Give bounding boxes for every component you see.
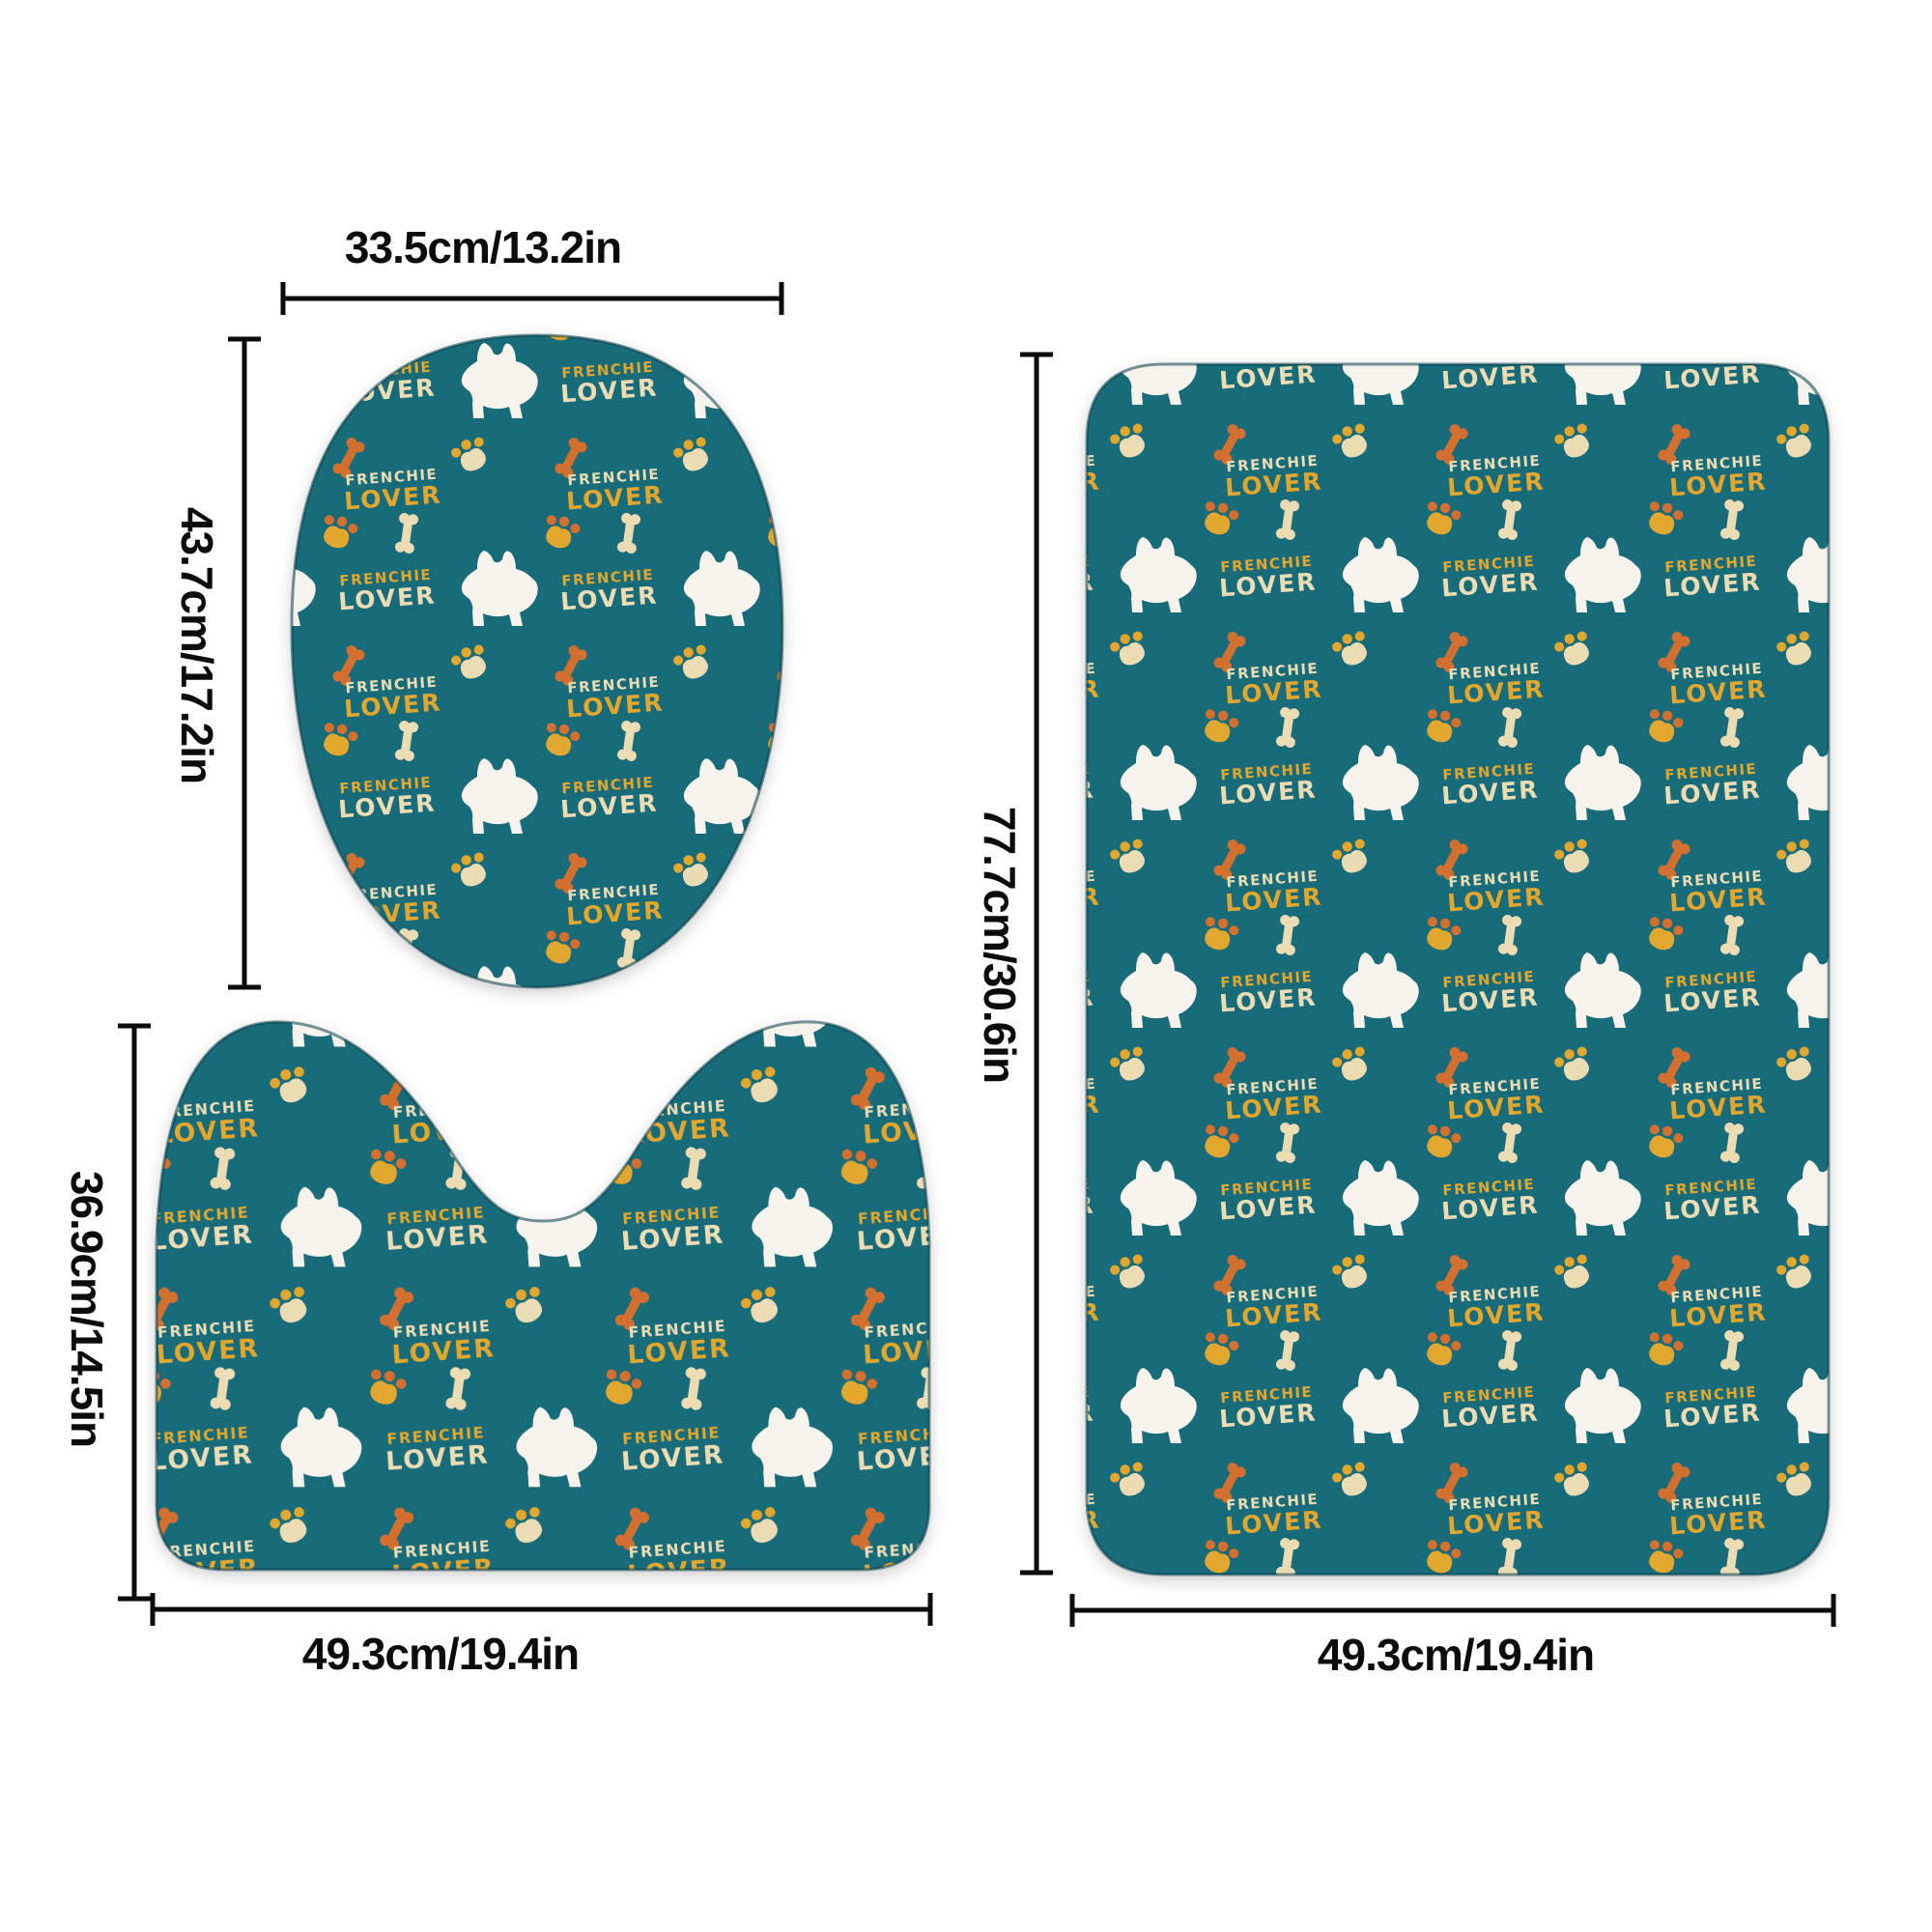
dim-mat-width xyxy=(1072,1594,1833,1627)
lid-height-label: 43.7cm/17.2in xyxy=(171,507,223,783)
dim-lid-width xyxy=(283,282,781,315)
toilet-lid-cover-shape xyxy=(292,335,782,987)
lid-width-label: 33.5cm/13.2in xyxy=(345,221,621,273)
mat-set-graphic: FRENCHIE LOVER xyxy=(0,0,1932,1932)
dim-contour-height xyxy=(118,1026,151,1599)
contour-width-label: 49.3cm/19.4in xyxy=(302,1628,579,1680)
contour-height-label: 36.9cm/14.5in xyxy=(61,1171,113,1447)
bath-mat-shape xyxy=(1087,364,1829,1575)
product-dimension-diagram: FRENCHIE LOVER xyxy=(0,0,1932,1932)
mat-height-label: 77.7cm/30.6in xyxy=(974,807,1026,1083)
mat-width-label: 49.3cm/19.4in xyxy=(1318,1629,1594,1681)
dim-lid-height xyxy=(228,339,261,987)
dim-contour-width xyxy=(153,1593,930,1626)
contour-mat-shape xyxy=(156,1022,929,1570)
